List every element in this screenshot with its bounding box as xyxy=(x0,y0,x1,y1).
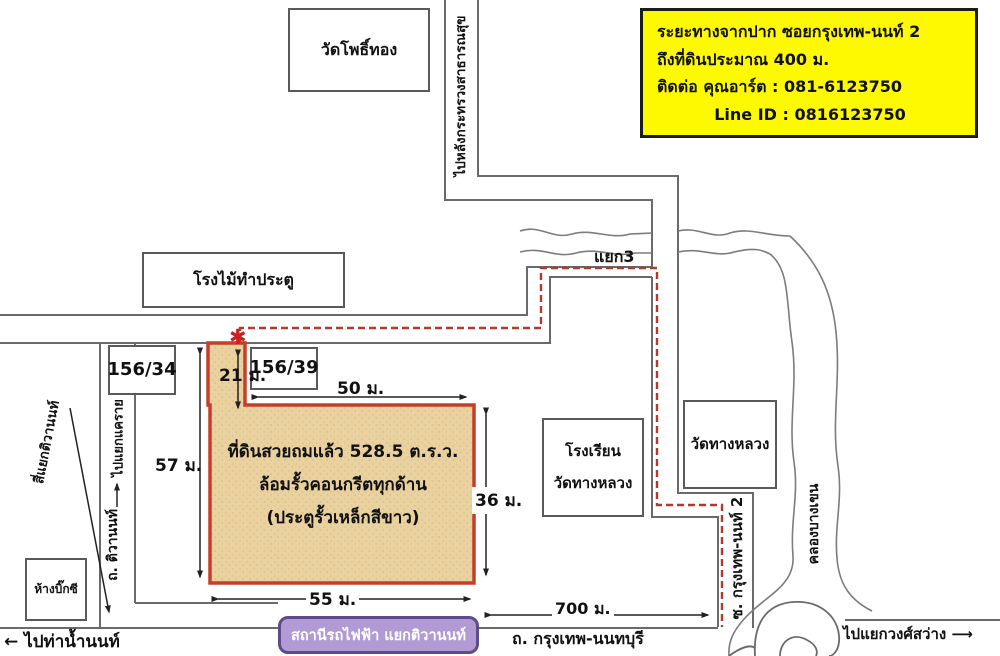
plot-line-area: ที่ดินสวยถมแล้ว 528.5 ต.ร.ว. xyxy=(214,436,472,469)
info-line-lineid: Line ID : 0816123750 xyxy=(657,101,963,129)
dim-strip-label: 21 ม. xyxy=(219,362,266,389)
house-156-34-label: 156/34 xyxy=(107,359,176,382)
school-label-line2: วัดทางหลวง xyxy=(554,468,633,500)
krungthep-nonthaburi-road-label: ถ. กรุงเทพ-นนทบุรี xyxy=(512,627,644,652)
dim-right-label: 36 ม. xyxy=(472,487,525,514)
big-c-label: ห้างบิ๊กซี xyxy=(34,582,78,597)
big-c-box: ห้างบิ๊กซี xyxy=(25,558,87,621)
hand-drawn-direction-map: วัดโพธิ์ทอง โรงไม้ทำประตู 156/34 156/39 … xyxy=(0,0,1000,656)
road-to-ministry-label: ไปหลังกระทรวงสาธารณสุข xyxy=(449,15,471,176)
mrt-station-label: สถานีรถไฟฟ้า แยกติวานนท์ xyxy=(291,624,466,647)
dim-bottom-label: 55 ม. xyxy=(306,586,359,613)
house-156-34-box: 156/34 xyxy=(108,345,176,395)
plot-line-gate: (ประตูรั้วเหล็กสีขาว) xyxy=(214,502,472,535)
contact-info-box: ระยะทางจากปาก ซอยกรุงเทพ-นนท์ 2 ถึงที่ดิ… xyxy=(640,8,978,138)
dim-left-label: 57 ม. xyxy=(155,452,202,479)
distance-700m-label: 700 ม. xyxy=(552,597,614,622)
wat-thang-luang-label: วัดทางหลวง xyxy=(691,435,770,454)
wat-thang-luang-box: วัดทางหลวง xyxy=(683,400,777,489)
plot-description: ที่ดินสวยถมแล้ว 528.5 ต.ร.ว. ล้อมรั้วคอน… xyxy=(214,436,472,535)
to-tha-nam-non-label: ← ไปท่าน้ำนนท์ xyxy=(4,628,120,655)
to-wong-sawang-label: ไปแยกวงศ์สว่าง ⟶ xyxy=(843,622,973,646)
junction3-label: แยก3 xyxy=(594,245,635,270)
info-line-phone: ติดต่อ คุณอาร์ต : 081-6123750 xyxy=(657,73,963,101)
khlong-bang-khen-label: คลองบางเขน xyxy=(803,484,825,565)
plot-line-fence: ล้อมรั้วคอนกรีตทุกด้าน xyxy=(214,469,472,502)
wat-pho-thong-box: วัดโพธิ์ทอง xyxy=(288,8,430,92)
info-line-distance2: ถึงที่ดินประมาณ 400 ม. xyxy=(657,46,963,74)
wat-pho-thong-label: วัดโพธิ์ทอง xyxy=(321,40,397,60)
school-box: โรงเรียน วัดทางหลวง xyxy=(542,418,644,517)
wood-factory-box: โรงไม้ทำประตู xyxy=(142,252,345,308)
mrt-station-box: สถานีรถไฟฟ้า แยกติวานนท์ xyxy=(278,616,479,654)
info-line-distance1: ระยะทางจากปาก ซอยกรุงเทพ-นนท์ 2 xyxy=(657,18,963,46)
thanon-tiwanon-label: ถ. ติวานนท์ xyxy=(102,509,124,581)
to-khae-rai-label: ไปแยกแคราย xyxy=(108,399,129,477)
wood-factory-label: โรงไม้ทำประตู xyxy=(193,270,294,290)
soi-krungthep-non2-label: ซ. กรุงเทพ-นนท์ 2 xyxy=(725,497,749,620)
dim-top-label: 50 ม. xyxy=(337,375,384,402)
entrance-star-marker: ✱ xyxy=(229,325,247,349)
school-label-line1: โรงเรียน xyxy=(565,436,621,468)
